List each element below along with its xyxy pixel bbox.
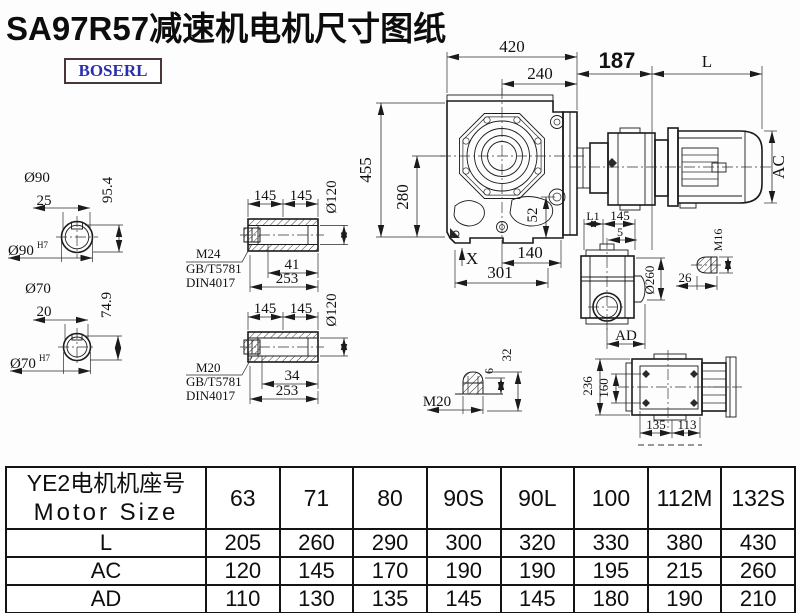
page-title: SA97R57减速机电机尺寸图纸 [6, 2, 446, 50]
row-label-ad: AD [6, 585, 206, 613]
size-col-132s: 132S [721, 467, 795, 529]
cell-ac-112m: 215 [648, 557, 722, 585]
bolt-m20: M20 6 32 [423, 349, 522, 415]
dim-52-label: 52 [525, 208, 541, 223]
side-5-label: 5 [617, 225, 623, 239]
shaft90-25-label: 25 [37, 193, 52, 209]
shaft90-h7-sup: H7 [37, 240, 48, 250]
cell-ac-132s: 260 [721, 557, 795, 585]
drawing-sheet: SA97R57减速机电机尺寸图纸 BOSERL [0, 0, 800, 613]
shaft70-h7-sup: H7 [39, 353, 50, 363]
dim-301-label: 301 [487, 263, 513, 282]
cell-ac-90l: 190 [501, 557, 575, 585]
cell-ad-80: 135 [353, 585, 427, 613]
cell-ac-100: 195 [574, 557, 648, 585]
cell-ad-100: 180 [574, 585, 648, 613]
motor-side-view [570, 128, 772, 210]
size-col-90l: 90L [501, 467, 575, 529]
cell-ad-71: 130 [280, 585, 354, 613]
hollow1-std2-label: DIN4017 [186, 275, 236, 290]
hollow2-dia120-label: Ø120 [324, 293, 340, 326]
dim-240-label: 240 [527, 64, 553, 83]
rear-113-label: 113 [677, 417, 696, 432]
shaft90-dia-label: Ø90 [24, 170, 50, 186]
size-col-100: 100 [574, 467, 648, 529]
bolt20-thread-label: M20 [423, 394, 451, 410]
cell-ad-63: 110 [206, 585, 280, 613]
cell-l-90s: 300 [427, 529, 501, 557]
shaft70-dia-label: Ø70 [25, 281, 51, 297]
hollow1-thread-label: M24 [196, 246, 221, 261]
rear-160-label: 160 [596, 378, 611, 398]
shaft70-h7-label: Ø70 [10, 356, 36, 372]
size-col-112m: 112M [648, 467, 722, 529]
motor-size-header-cn: YE2电机机座号 [7, 469, 205, 498]
size-col-90s: 90S [427, 467, 501, 529]
size-col-63: 63 [206, 467, 280, 529]
table-row-AC: AC 120 145 170 190 190 195 215 260 [6, 557, 795, 585]
dim-187-label: 187 [599, 48, 636, 73]
side-l1-label: L1 [586, 209, 599, 223]
hollow2-std2-label: DIN4017 [186, 388, 236, 403]
cell-l-71: 260 [280, 529, 354, 557]
motor-size-header-en: Motor Size [7, 498, 205, 527]
hollow2-253-label: 253 [276, 383, 299, 399]
cell-l-90l: 320 [501, 529, 575, 557]
hollow2-145a-label: 145 [254, 301, 277, 317]
dim-ac-label: AC [769, 155, 788, 179]
hollow2-std1-label: GB/T5781 [186, 374, 242, 389]
side-dia260-label: Ø260 [642, 266, 657, 295]
rear-135-label: 135 [646, 417, 666, 432]
size-col-80: 80 [353, 467, 427, 529]
cell-ac-63: 120 [206, 557, 280, 585]
table-row-AD: AD 110 130 135 145 145 180 190 210 [6, 585, 795, 613]
cell-ad-112m: 190 [648, 585, 722, 613]
side-ad-label: AD [615, 328, 637, 344]
boserl-logo-text: BOSERL [79, 61, 148, 80]
bolt20-6-label: 6 [482, 368, 496, 374]
rear-236-label: 236 [580, 376, 595, 396]
dim-x-label: X [466, 249, 478, 268]
hollow1-std1-label: GB/T5781 [186, 261, 242, 276]
gearbox-rear-view: 236 160 135 113 [580, 350, 742, 445]
bolt-m16: M16 26 [676, 229, 733, 290]
hollow-shaft-m24: 145 145 Ø120 M24 GB/T5781 DIN4017 41 253 [186, 180, 348, 292]
dim-420-label: 420 [499, 37, 525, 56]
cell-ac-80: 170 [353, 557, 427, 585]
cell-ad-90l: 145 [501, 585, 575, 613]
shaft70-20-label: 20 [37, 304, 52, 320]
bolt16-thread-label: M16 [711, 229, 725, 252]
cell-l-63: 205 [206, 529, 280, 557]
bolt20-32-label: 32 [499, 349, 514, 362]
hollow1-145a-label: 145 [254, 188, 277, 204]
cell-l-132s: 430 [721, 529, 795, 557]
bolt16-26-label: 26 [679, 270, 693, 285]
shaft90-h7-label: Ø90 [8, 243, 34, 259]
hollow1-145b-label: 145 [290, 188, 313, 204]
cell-l-80: 290 [353, 529, 427, 557]
row-label-ac: AC [6, 557, 206, 585]
cell-l-100: 330 [574, 529, 648, 557]
table-row-L: L 205 260 290 300 320 330 380 430 [6, 529, 795, 557]
motor-size-table: YE2电机机座号 Motor Size 63 71 80 90S 90L 100… [5, 466, 796, 613]
cell-ad-132s: 210 [721, 585, 795, 613]
table-header-row: YE2电机机座号 Motor Size 63 71 80 90S 90L 100… [6, 467, 795, 529]
shaft-section-90: Ø90 25 95.4 Ø90 H7 [8, 170, 123, 262]
shaft90-954-label: 95.4 [100, 176, 116, 203]
cell-ac-90s: 190 [427, 557, 501, 585]
hollow1-dia120-label: Ø120 [324, 180, 340, 213]
side-145-label: 145 [610, 208, 630, 223]
gearbox-side-view: L1 145 5 Ø260 AD [581, 208, 665, 349]
gearbox-front-view [440, 88, 585, 247]
row-label-l: L [6, 529, 206, 557]
boserl-logo: BOSERL [64, 58, 162, 84]
dim-455-label: 455 [356, 157, 375, 183]
cell-l-112m: 380 [648, 529, 722, 557]
front-view-dimensions: 420 240 455 280 52 X 140 301 [356, 37, 577, 288]
hollow-shaft-m20: 145 145 Ø120 M20 GB/T5781 DIN4017 34 253 [186, 293, 348, 404]
motor-size-header-cell: YE2电机机座号 Motor Size [6, 467, 206, 529]
dim-l-label: L [702, 52, 712, 71]
cell-ad-90s: 145 [427, 585, 501, 613]
size-col-71: 71 [280, 467, 354, 529]
dim-280-label: 280 [393, 184, 412, 210]
hollow2-145b-label: 145 [290, 301, 313, 317]
shaft-section-70: Ø70 20 74.9 Ø70 H7 [10, 281, 122, 374]
dim-140-label: 140 [517, 243, 543, 262]
cell-ac-71: 145 [280, 557, 354, 585]
shaft70-749-label: 74.9 [99, 292, 115, 318]
hollow2-thread-label: M20 [196, 360, 221, 375]
hollow2-34-label: 34 [285, 368, 301, 384]
hollow1-253-label: 253 [276, 271, 299, 287]
